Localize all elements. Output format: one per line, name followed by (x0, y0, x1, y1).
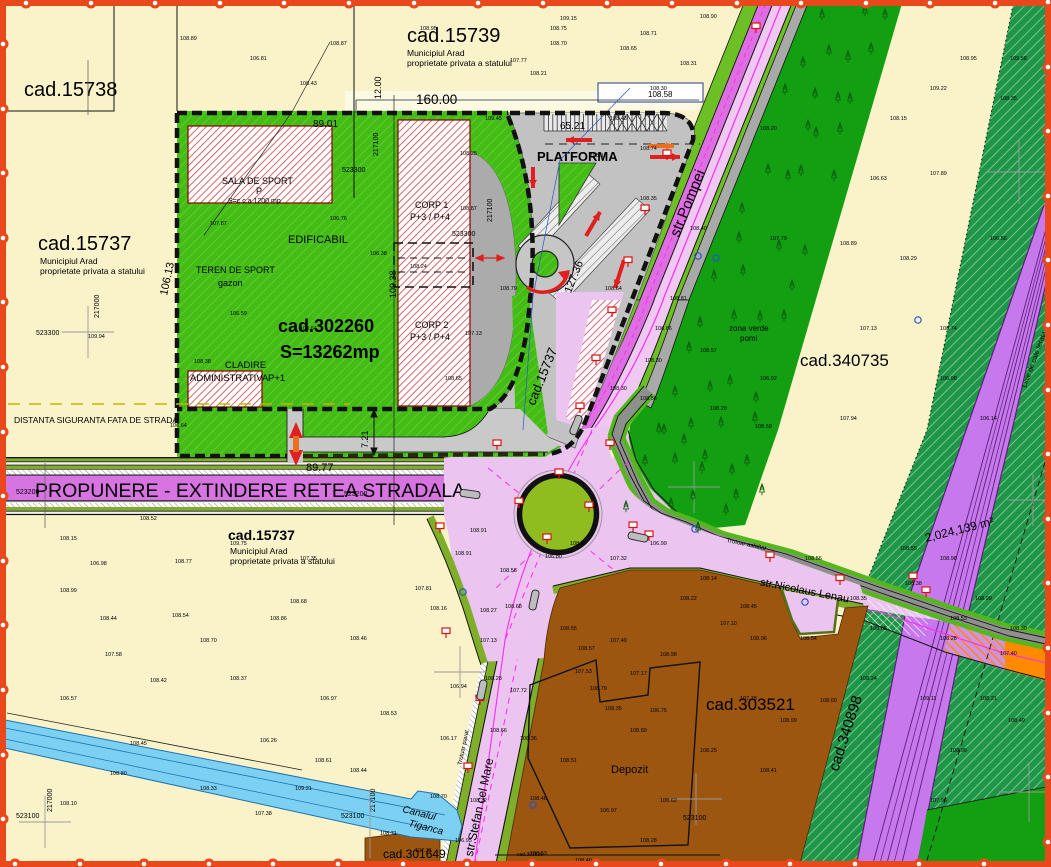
svg-text:109.75: 109.75 (230, 541, 247, 547)
svg-text:108.21: 108.21 (530, 71, 547, 77)
svg-text:108.16: 108.16 (430, 606, 447, 612)
svg-text:217000: 217000 (94, 295, 101, 318)
svg-text:106.81: 106.81 (250, 56, 267, 62)
svg-text:107.40: 107.40 (1000, 651, 1017, 657)
svg-text:106.97: 106.97 (320, 696, 337, 702)
svg-text:107.49: 107.49 (610, 638, 627, 644)
svg-text:106.92: 106.92 (760, 376, 777, 382)
svg-text:523200: 523200 (16, 489, 39, 496)
svg-text:108.35: 108.35 (605, 706, 622, 712)
svg-text:proprietate privata a statului: proprietate privata a statului (230, 556, 335, 566)
svg-text:108.33: 108.33 (200, 786, 217, 792)
svg-text:108.80: 108.80 (110, 771, 127, 777)
svg-text:108.40: 108.40 (690, 226, 707, 232)
svg-text:108.36: 108.36 (520, 736, 537, 742)
svg-text:108.54: 108.54 (172, 613, 189, 619)
svg-text:108.45: 108.45 (130, 741, 147, 747)
svg-text:108.70: 108.70 (430, 794, 447, 800)
svg-text:TEREN DE SPORT: TEREN DE SPORT (196, 265, 275, 275)
svg-text:107.32: 107.32 (610, 556, 627, 562)
svg-text:pomi: pomi (740, 334, 758, 343)
svg-text:108.87: 108.87 (330, 41, 347, 47)
svg-text:106.59: 106.59 (230, 311, 247, 317)
svg-text:CORP 1: CORP 1 (415, 200, 448, 210)
svg-text:107.94: 107.94 (840, 416, 857, 422)
svg-text:108.51: 108.51 (560, 758, 577, 764)
svg-text:108.28: 108.28 (485, 676, 502, 682)
svg-text:107.13: 107.13 (480, 638, 497, 644)
svg-text:108.54: 108.54 (800, 636, 817, 642)
svg-text:108.89: 108.89 (180, 36, 197, 42)
svg-text:Municipiul Arad: Municipiul Arad (230, 546, 288, 556)
svg-text:109.45: 109.45 (485, 116, 502, 122)
svg-text:P+1: P+1 (268, 373, 285, 384)
svg-text:108.24: 108.24 (860, 676, 877, 682)
svg-text:106.97: 106.97 (600, 808, 617, 814)
svg-text:108.55: 108.55 (560, 626, 577, 632)
svg-text:523300: 523300 (452, 231, 475, 238)
svg-text:108.86: 108.86 (270, 616, 287, 622)
svg-text:107.72: 107.72 (510, 688, 527, 694)
svg-text:108.53: 108.53 (950, 616, 967, 622)
svg-text:108.89: 108.89 (630, 728, 647, 734)
svg-text:108.95: 108.95 (420, 26, 437, 32)
svg-text:108.74: 108.74 (640, 146, 657, 152)
svg-text:108.37: 108.37 (230, 676, 247, 682)
svg-text:107.87: 107.87 (210, 221, 227, 227)
svg-text:106.17: 106.17 (440, 736, 457, 742)
svg-text:108.41: 108.41 (760, 768, 777, 774)
svg-text:cad.302260: cad.302260 (278, 316, 374, 336)
svg-text:109.11: 109.11 (920, 696, 936, 702)
svg-text:108.57: 108.57 (578, 646, 595, 652)
svg-text:108.35: 108.35 (850, 596, 867, 602)
svg-text:107.53: 107.53 (575, 669, 592, 675)
svg-text:108.65: 108.65 (445, 376, 462, 382)
svg-text:108.57: 108.57 (700, 348, 717, 354)
svg-text:P+3 / P+4: P+3 / P+4 (410, 332, 450, 342)
svg-text:108.95: 108.95 (960, 56, 977, 62)
svg-text:108.30: 108.30 (1010, 626, 1027, 632)
svg-text:108.99: 108.99 (60, 588, 77, 594)
svg-text:108.46: 108.46 (530, 796, 547, 802)
svg-text:DISTANTA SIGURANTA FATA DE STR: DISTANTA SIGURANTA FATA DE STRADA (14, 415, 178, 425)
svg-text:106.94: 106.94 (450, 684, 467, 690)
svg-text:108.68: 108.68 (290, 599, 307, 605)
svg-text:108.71: 108.71 (380, 831, 397, 837)
svg-text:107.96: 107.96 (930, 798, 947, 804)
svg-text:65.21: 65.21 (560, 121, 585, 132)
svg-text:108.66: 108.66 (655, 326, 672, 332)
svg-text:217100: 217100 (370, 789, 377, 812)
svg-text:108.14: 108.14 (700, 576, 717, 582)
svg-text:108.45: 108.45 (740, 604, 757, 610)
svg-text:109.15: 109.15 (560, 16, 577, 22)
svg-text:106.99: 106.99 (650, 541, 667, 547)
svg-text:S=c.c.a 1200 mp: S=c.c.a 1200 mp (228, 198, 281, 205)
svg-text:cad.15738: cad.15738 (24, 79, 117, 101)
svg-text:108.70: 108.70 (200, 638, 217, 644)
svg-text:108.53: 108.53 (380, 711, 397, 717)
svg-text:107.35: 107.35 (300, 556, 317, 562)
svg-text:217000: 217000 (47, 789, 54, 812)
svg-text:Municipiul Arad: Municipiul Arad (40, 256, 98, 266)
svg-text:107.79: 107.79 (770, 236, 787, 242)
svg-text:109.38: 109.38 (388, 270, 398, 298)
svg-text:108.10: 108.10 (60, 801, 77, 807)
svg-text:108.35: 108.35 (640, 196, 657, 202)
svg-text:107.89: 107.89 (930, 171, 947, 177)
svg-text:108.66: 108.66 (490, 728, 507, 734)
svg-text:108.25: 108.25 (460, 151, 477, 157)
svg-text:107.38: 107.38 (255, 811, 272, 817)
svg-text:106.57: 106.57 (60, 696, 77, 702)
svg-text:107.13: 107.13 (465, 331, 482, 337)
svg-text:108.91: 108.91 (455, 551, 472, 557)
svg-text:108.71: 108.71 (640, 31, 657, 37)
svg-text:106.76: 106.76 (330, 216, 347, 222)
svg-text:107.78: 107.78 (740, 696, 757, 702)
svg-text:108.28: 108.28 (940, 636, 957, 642)
svg-text:107.17: 107.17 (630, 671, 647, 677)
svg-text:108.70: 108.70 (550, 41, 567, 47)
svg-text:106.98: 106.98 (90, 561, 107, 567)
svg-text:108.79: 108.79 (500, 286, 517, 292)
svg-text:89.01: 89.01 (313, 119, 338, 130)
svg-text:108.16: 108.16 (590, 153, 607, 159)
svg-text:108.99: 108.99 (780, 718, 797, 724)
svg-text:108.96: 108.96 (750, 636, 767, 642)
svg-text:108.53: 108.53 (530, 851, 547, 857)
svg-text:108.91: 108.91 (470, 528, 487, 534)
svg-text:107.81: 107.81 (415, 586, 432, 592)
svg-text:108.56: 108.56 (500, 568, 517, 574)
svg-text:108.90: 108.90 (700, 14, 717, 20)
svg-text:CLADIRE: CLADIRE (225, 360, 266, 371)
svg-text:108.31: 108.31 (680, 61, 697, 67)
svg-text:108.87: 108.87 (460, 206, 477, 212)
svg-text:108.79: 108.79 (590, 686, 607, 692)
svg-text:108.28: 108.28 (640, 838, 657, 844)
svg-text:108.21: 108.21 (980, 696, 997, 702)
svg-text:108.55: 108.55 (900, 546, 917, 552)
svg-text:108.46: 108.46 (350, 636, 367, 642)
svg-text:108.81: 108.81 (670, 296, 687, 302)
svg-text:108.30: 108.30 (650, 86, 667, 92)
svg-text:523100: 523100 (341, 813, 364, 820)
svg-text:S=13262mp: S=13262mp (280, 342, 380, 362)
svg-text:108.29: 108.29 (900, 256, 917, 262)
svg-text:108.56: 108.56 (640, 396, 657, 402)
svg-text:P: P (256, 186, 262, 196)
svg-text:106.14: 106.14 (980, 416, 997, 422)
svg-text:108.47: 108.47 (570, 541, 587, 547)
svg-text:108.25: 108.25 (700, 748, 717, 754)
svg-text:108.64: 108.64 (605, 286, 622, 292)
svg-text:108.68: 108.68 (505, 604, 522, 610)
svg-text:108.64: 108.64 (300, 326, 317, 332)
svg-text:cad.15737: cad.15737 (38, 233, 131, 255)
svg-text:SALA DE SPORT: SALA DE SPORT (222, 176, 293, 186)
svg-text:108.99: 108.99 (975, 596, 992, 602)
svg-text:108.38: 108.38 (194, 359, 211, 365)
svg-text:108.22: 108.22 (680, 596, 697, 602)
svg-text:106.62: 106.62 (660, 798, 677, 804)
svg-text:PROPUNERE - EXTINDERE RETEA ST: PROPUNERE - EXTINDERE RETEA STRADALA (35, 480, 465, 502)
svg-text:proprietate privata a statului: proprietate privata a statului (407, 58, 512, 68)
svg-text:106.80: 106.80 (545, 554, 562, 560)
svg-text:108.65: 108.65 (620, 46, 637, 52)
svg-text:108.60: 108.60 (820, 698, 837, 704)
svg-text:108.44: 108.44 (100, 616, 117, 622)
svg-text:106.98: 106.98 (940, 376, 957, 382)
svg-text:108.61: 108.61 (315, 758, 332, 764)
svg-text:109.58: 109.58 (1010, 56, 1027, 62)
svg-text:106.64: 106.64 (170, 423, 187, 429)
svg-text:108.98: 108.98 (660, 652, 677, 658)
svg-text:108.32: 108.32 (470, 798, 487, 804)
svg-text:107.77: 107.77 (510, 58, 527, 64)
svg-text:106.95: 106.95 (455, 838, 472, 844)
svg-text:89.77: 89.77 (306, 462, 334, 474)
svg-text:217100: 217100 (373, 133, 380, 156)
svg-text:107.10: 107.10 (720, 621, 737, 627)
svg-text:108.20: 108.20 (760, 126, 777, 132)
svg-text:108.74: 108.74 (940, 326, 957, 332)
svg-text:217100: 217100 (487, 199, 494, 222)
svg-text:523300: 523300 (36, 330, 59, 337)
svg-text:107.13: 107.13 (860, 326, 877, 332)
svg-text:109.21: 109.21 (295, 786, 312, 792)
svg-text:gazon: gazon (218, 278, 243, 288)
svg-text:proprietate privata a statului: proprietate privata a statului (40, 266, 145, 276)
svg-text:109.22: 109.22 (930, 86, 947, 92)
svg-text:106.75: 106.75 (650, 708, 667, 714)
svg-text:106.56: 106.56 (990, 236, 1007, 242)
svg-text:P+3 / P+4: P+3 / P+4 (410, 212, 450, 222)
svg-text:107.58: 107.58 (105, 652, 122, 658)
svg-text:106.38: 106.38 (370, 251, 387, 257)
svg-text:108.49: 108.49 (1008, 718, 1025, 724)
svg-text:106.63: 106.63 (870, 176, 887, 182)
svg-text:109.94: 109.94 (88, 334, 105, 340)
svg-text:Depozit: Depozit (611, 764, 648, 776)
svg-text:108.35: 108.35 (1000, 96, 1017, 102)
svg-text:7.21: 7.21 (360, 430, 370, 448)
svg-text:CORP 2: CORP 2 (415, 320, 448, 330)
svg-text:EDIFICABIL: EDIFICABIL (288, 234, 348, 246)
svg-text:108.15: 108.15 (890, 116, 907, 122)
svg-text:108.42: 108.42 (150, 678, 167, 684)
svg-text:108.43: 108.43 (300, 81, 317, 87)
svg-text:Municipiul Arad: Municipiul Arad (407, 48, 465, 58)
svg-text:108.20: 108.20 (710, 406, 727, 412)
svg-text:108.30: 108.30 (645, 358, 662, 364)
svg-text:108.27: 108.27 (480, 608, 497, 614)
svg-text:108.44: 108.44 (350, 768, 367, 774)
svg-text:107.31: 107.31 (415, 848, 432, 854)
svg-text:523100: 523100 (683, 815, 706, 822)
svg-text:108.43: 108.43 (610, 116, 627, 122)
svg-text:108.77: 108.77 (175, 559, 192, 565)
svg-text:12.00: 12.00 (373, 76, 383, 99)
svg-text:108.99: 108.99 (950, 748, 967, 754)
svg-text:108.30: 108.30 (610, 386, 627, 392)
svg-text:523200: 523200 (344, 491, 367, 498)
svg-text:523100: 523100 (16, 813, 39, 820)
svg-text:108.59: 108.59 (755, 424, 772, 430)
svg-text:106.26: 106.26 (260, 738, 277, 744)
svg-text:108.56: 108.56 (805, 556, 822, 562)
svg-text:108.89: 108.89 (840, 241, 857, 247)
svg-text:108.65: 108.65 (870, 626, 887, 632)
svg-text:160.00: 160.00 (416, 92, 457, 107)
svg-text:108.52: 108.52 (140, 516, 157, 522)
svg-text:108.75: 108.75 (550, 26, 567, 32)
svg-text:108.15: 108.15 (60, 536, 77, 542)
svg-text:zona verde: zona verde (729, 324, 769, 333)
svg-text:108.98: 108.98 (940, 556, 957, 562)
svg-text:108.24: 108.24 (410, 264, 427, 270)
svg-text:ADMINISTRATIVA: ADMINISTRATIVA (190, 373, 269, 384)
svg-text:108.38: 108.38 (905, 581, 922, 587)
svg-text:cad.340735: cad.340735 (800, 351, 889, 370)
svg-text:523300: 523300 (342, 167, 365, 174)
